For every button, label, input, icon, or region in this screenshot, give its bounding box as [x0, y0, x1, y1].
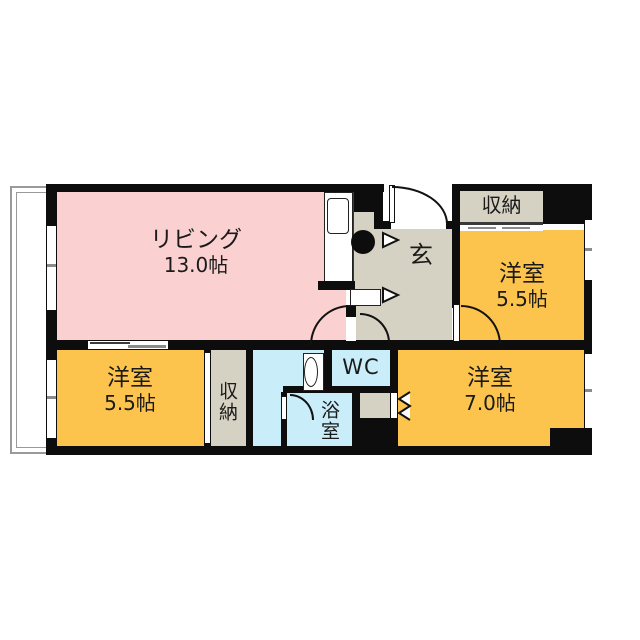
wall-top-main [46, 184, 384, 192]
label-living: リビング 13.0帖 [86, 228, 306, 276]
shoe-cabinet-marker-top [382, 232, 400, 248]
bedroom-br-name: 洋室 [400, 366, 580, 392]
floorplan: リビング 13.0帖 洋室 5.5帖 洋室 5.5帖 洋室 7.0帖 収納 玄 … [0, 0, 640, 640]
closet-tr-name: 収納 [482, 193, 522, 217]
window-bedroom-tr-mullion [585, 248, 592, 251]
window-bedroom-bl-mullion [47, 396, 56, 399]
label-bedroom-br: 洋室 7.0帖 [400, 366, 580, 414]
wall-closet-bl-right [246, 350, 253, 447]
pillar-top-right [543, 184, 592, 224]
closet-bl-opening [205, 353, 210, 443]
closet-tr-rail-1 [468, 227, 496, 229]
living-area: 13.0帖 [86, 254, 306, 276]
closet-tr-rail-2 [502, 227, 530, 229]
label-bath: 浴室 [316, 396, 343, 446]
label-wc: WC [332, 356, 390, 380]
bedroom-br-area: 7.0帖 [400, 392, 580, 414]
bedroom-tr-name: 洋室 [462, 262, 582, 288]
wc-name: WC [342, 355, 379, 379]
wall-kitchen-corner [352, 184, 374, 212]
bedroom-tr-door-leaf [453, 304, 460, 342]
entrance-name: 玄 [409, 241, 433, 269]
label-bedroom-tr: 洋室 5.5帖 [462, 262, 582, 310]
window-living-left [47, 226, 56, 310]
bedroom-tr-area: 5.5帖 [462, 288, 582, 310]
label-closet-bl: 収納 [214, 360, 241, 444]
label-closet-tr: 収納 [460, 194, 543, 216]
window-bedroom-bl-left [47, 360, 56, 438]
washbasin-bowl [304, 357, 318, 387]
pillar-closet-br [358, 418, 398, 452]
wall-closet-tr-left [452, 184, 460, 232]
bedroom-bl-name: 洋室 [60, 366, 200, 392]
label-entrance: 玄 [404, 242, 438, 269]
living-name: リビング [86, 228, 306, 254]
bath-door-leaf [281, 396, 287, 420]
pillar-bottom-right [550, 428, 584, 447]
entrance-door-arc [392, 186, 448, 224]
label-bedroom-bl: 洋室 5.5帖 [60, 366, 200, 414]
washroom-strip [253, 392, 281, 447]
sliding-door-rail-2 [128, 345, 166, 348]
kitchen-sink [327, 198, 349, 234]
window-bedroom-br-mullion [585, 389, 592, 392]
sliding-door-rail-1 [90, 342, 130, 344]
wall-bottom [46, 446, 592, 455]
column-entrance [351, 230, 375, 254]
shoe-cabinet [350, 289, 381, 306]
wall-bedroom-tr-left [452, 229, 460, 308]
closet-br-opening [391, 393, 397, 418]
bedroom-bl-area: 5.5帖 [60, 392, 200, 414]
shoe-cabinet-marker-bottom [382, 287, 400, 303]
closet-bedroom-br [358, 392, 390, 418]
window-living-left-mullion [47, 264, 56, 267]
